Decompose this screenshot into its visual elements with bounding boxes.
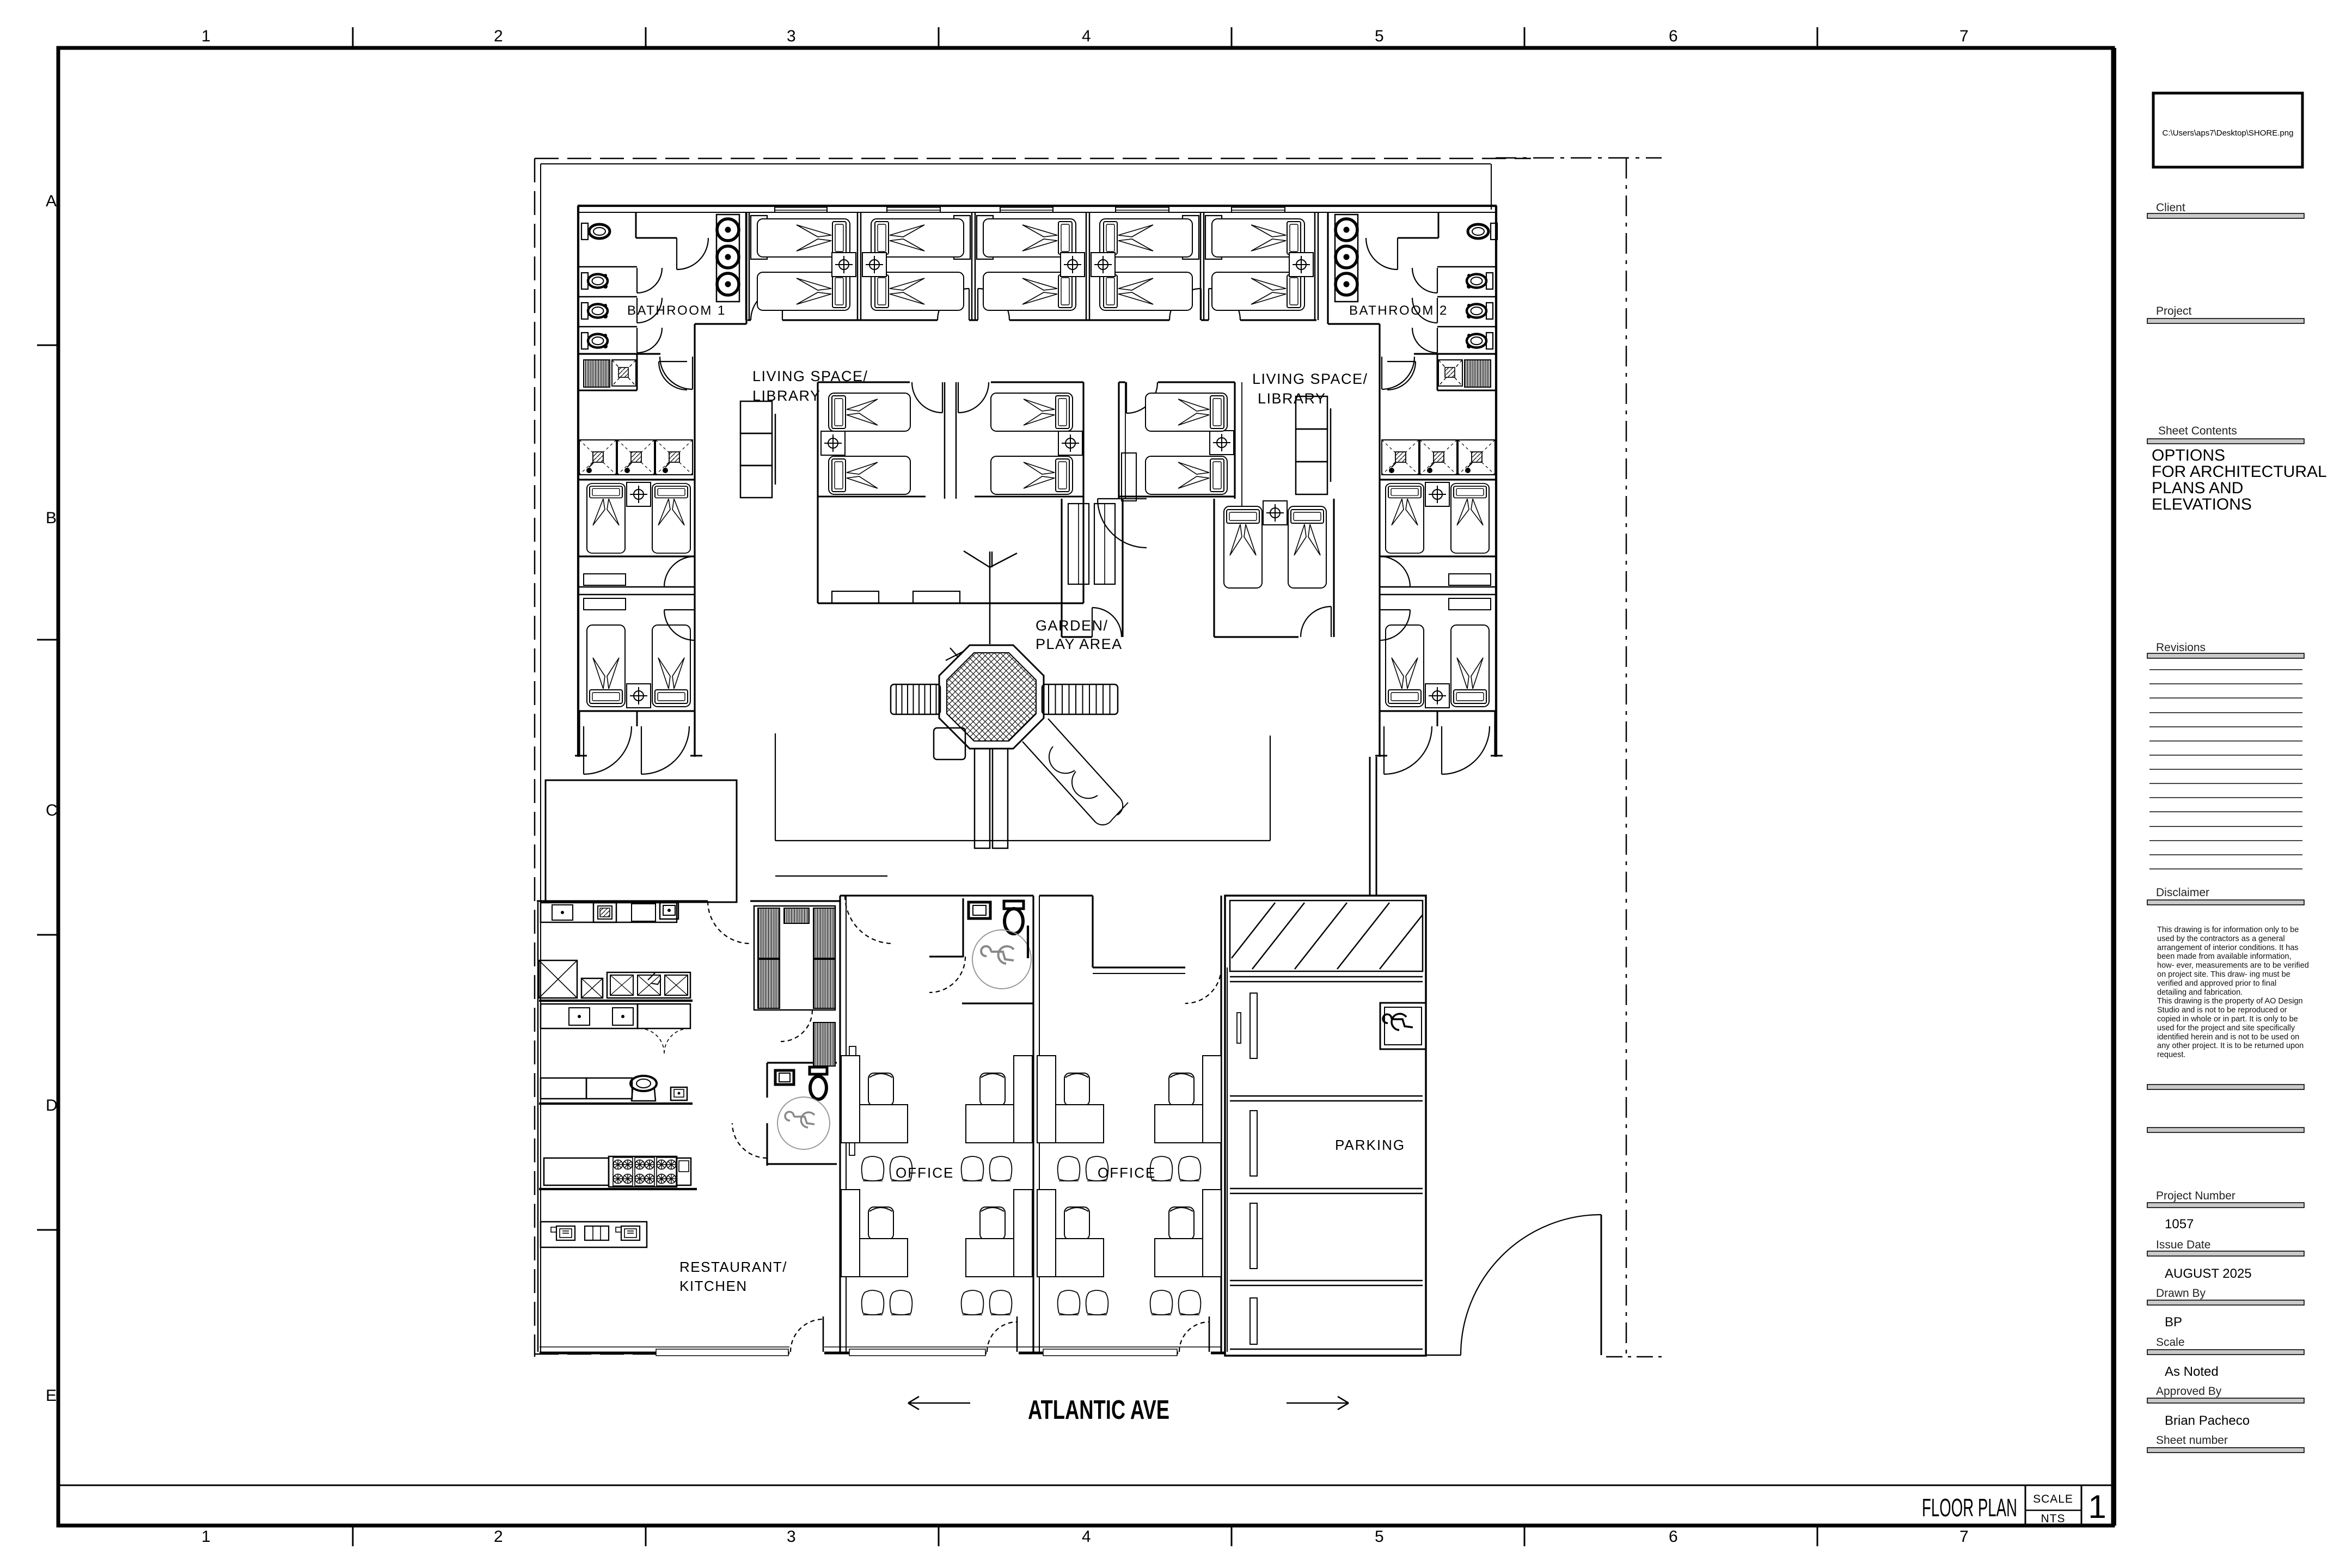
svg-text:KITCHEN: KITCHEN: [679, 1278, 748, 1294]
svg-text:GARDEN/: GARDEN/: [1036, 617, 1108, 634]
svg-text:PLANS AND: PLANS AND: [2152, 479, 2243, 497]
svg-text:how- ever, measurements are to: how- ever, measurements are to be verifi…: [2157, 961, 2309, 970]
svg-text:FLOOR PLAN: FLOOR PLAN: [1922, 1493, 2017, 1522]
svg-text:BATHROOM 1: BATHROOM 1: [627, 303, 726, 318]
svg-text:Sheet Contents: Sheet Contents: [2158, 425, 2237, 437]
svg-text:OFFICE: OFFICE: [896, 1165, 954, 1181]
svg-text:Drawn By: Drawn By: [2156, 1287, 2206, 1300]
svg-text:Project: Project: [2156, 305, 2192, 317]
svg-text:PLAY AREA: PLAY AREA: [1036, 636, 1123, 652]
svg-text:FOR ARCHITECTURAL: FOR ARCHITECTURAL: [2152, 463, 2327, 481]
svg-text:C: C: [46, 801, 58, 819]
svg-text:2: 2: [494, 27, 503, 45]
svg-text:6: 6: [1669, 1528, 1678, 1546]
svg-text:AUGUST 2025: AUGUST 2025: [2165, 1266, 2252, 1281]
svg-text:4: 4: [1082, 27, 1091, 45]
svg-text:identified herein and is not t: identified herein and is not to be used …: [2157, 1033, 2299, 1042]
svg-text:been made from available infor: been made from available information,: [2157, 952, 2292, 961]
svg-text:3: 3: [787, 1528, 796, 1546]
svg-text:any other project. It is to be: any other project. It is to be returned …: [2157, 1042, 2304, 1050]
svg-text:C:\Users\aps7\Desktop\SHORE.pn: C:\Users\aps7\Desktop\SHORE.png: [2163, 128, 2294, 138]
svg-text:BATHROOM 2: BATHROOM 2: [1349, 303, 1448, 318]
svg-text:copied in whole or in part. I: copied in whole or in part. It is only t…: [2157, 1015, 2298, 1024]
svg-text:Project Number: Project Number: [2156, 1190, 2235, 1202]
svg-text:5: 5: [1375, 1528, 1384, 1546]
svg-text:B: B: [46, 509, 57, 527]
svg-text:BP: BP: [2165, 1315, 2182, 1330]
svg-text:7: 7: [1959, 27, 1969, 45]
svg-text:Approved By: Approved By: [2156, 1385, 2222, 1398]
svg-text:PARKING: PARKING: [1335, 1137, 1405, 1153]
svg-text:Scale: Scale: [2156, 1336, 2185, 1349]
svg-text:Revisions: Revisions: [2156, 641, 2206, 654]
svg-text:LIBRARY: LIBRARY: [1258, 390, 1326, 407]
svg-text:This drawing is the property o: This drawing is the property of AO Desig…: [2157, 997, 2303, 1006]
svg-text:RESTAURANT/: RESTAURANT/: [679, 1259, 787, 1275]
svg-text:OFFICE: OFFICE: [1098, 1165, 1156, 1181]
svg-text:request.: request.: [2157, 1051, 2185, 1059]
svg-text:A: A: [46, 192, 57, 210]
svg-text:2: 2: [494, 1528, 503, 1546]
svg-text:on project site. This draw- in: on project site. This draw- ing must be: [2157, 970, 2290, 979]
svg-text:used for the project and site: used for the project and site specifical…: [2157, 1024, 2295, 1032]
svg-text:This drawing is for informatio: This drawing is for information only to …: [2157, 926, 2299, 934]
svg-text:As Noted: As Noted: [2165, 1364, 2219, 1379]
svg-text:verified and approved prior to: verified and approved prior to final: [2157, 979, 2276, 988]
svg-text:Sheet number: Sheet number: [2156, 1434, 2228, 1447]
svg-text:NTS: NTS: [2041, 1512, 2066, 1525]
svg-text:Brian Pacheco: Brian Pacheco: [2165, 1413, 2250, 1428]
svg-text:used by the contractors as a g: used by the contractors as a general: [2157, 934, 2285, 943]
svg-text:D: D: [46, 1097, 58, 1114]
svg-text:6: 6: [1669, 27, 1678, 45]
svg-text:1: 1: [2088, 1489, 2106, 1525]
svg-text:3: 3: [787, 27, 796, 45]
svg-text:detailing and fabrication.: detailing and fabrication.: [2157, 988, 2243, 997]
svg-text:7: 7: [1959, 1528, 1969, 1546]
svg-text:LIVING SPACE/: LIVING SPACE/: [1252, 371, 1368, 387]
svg-text:ELEVATIONS: ELEVATIONS: [2152, 495, 2252, 513]
svg-text:OPTIONS: OPTIONS: [2152, 446, 2225, 464]
svg-text:E: E: [46, 1387, 57, 1405]
svg-text:Disclaimer: Disclaimer: [2156, 886, 2209, 899]
svg-text:5: 5: [1375, 27, 1384, 45]
svg-text:ATLANTIC AVE: ATLANTIC AVE: [1028, 1395, 1169, 1425]
svg-text:1: 1: [201, 1528, 211, 1546]
svg-text:1057: 1057: [2165, 1217, 2194, 1232]
svg-text:4: 4: [1082, 1528, 1091, 1546]
svg-text:SCALE: SCALE: [2033, 1493, 2073, 1505]
svg-text:1: 1: [201, 27, 211, 45]
svg-text:Client: Client: [2156, 201, 2185, 214]
svg-text:arrangement of interior condit: arrangement of interior conditions. It h…: [2157, 944, 2299, 952]
svg-text:Issue Date: Issue Date: [2156, 1239, 2210, 1251]
svg-text:Studio and is not to be reprod: Studio and is not to be reproduced or: [2157, 1006, 2287, 1015]
